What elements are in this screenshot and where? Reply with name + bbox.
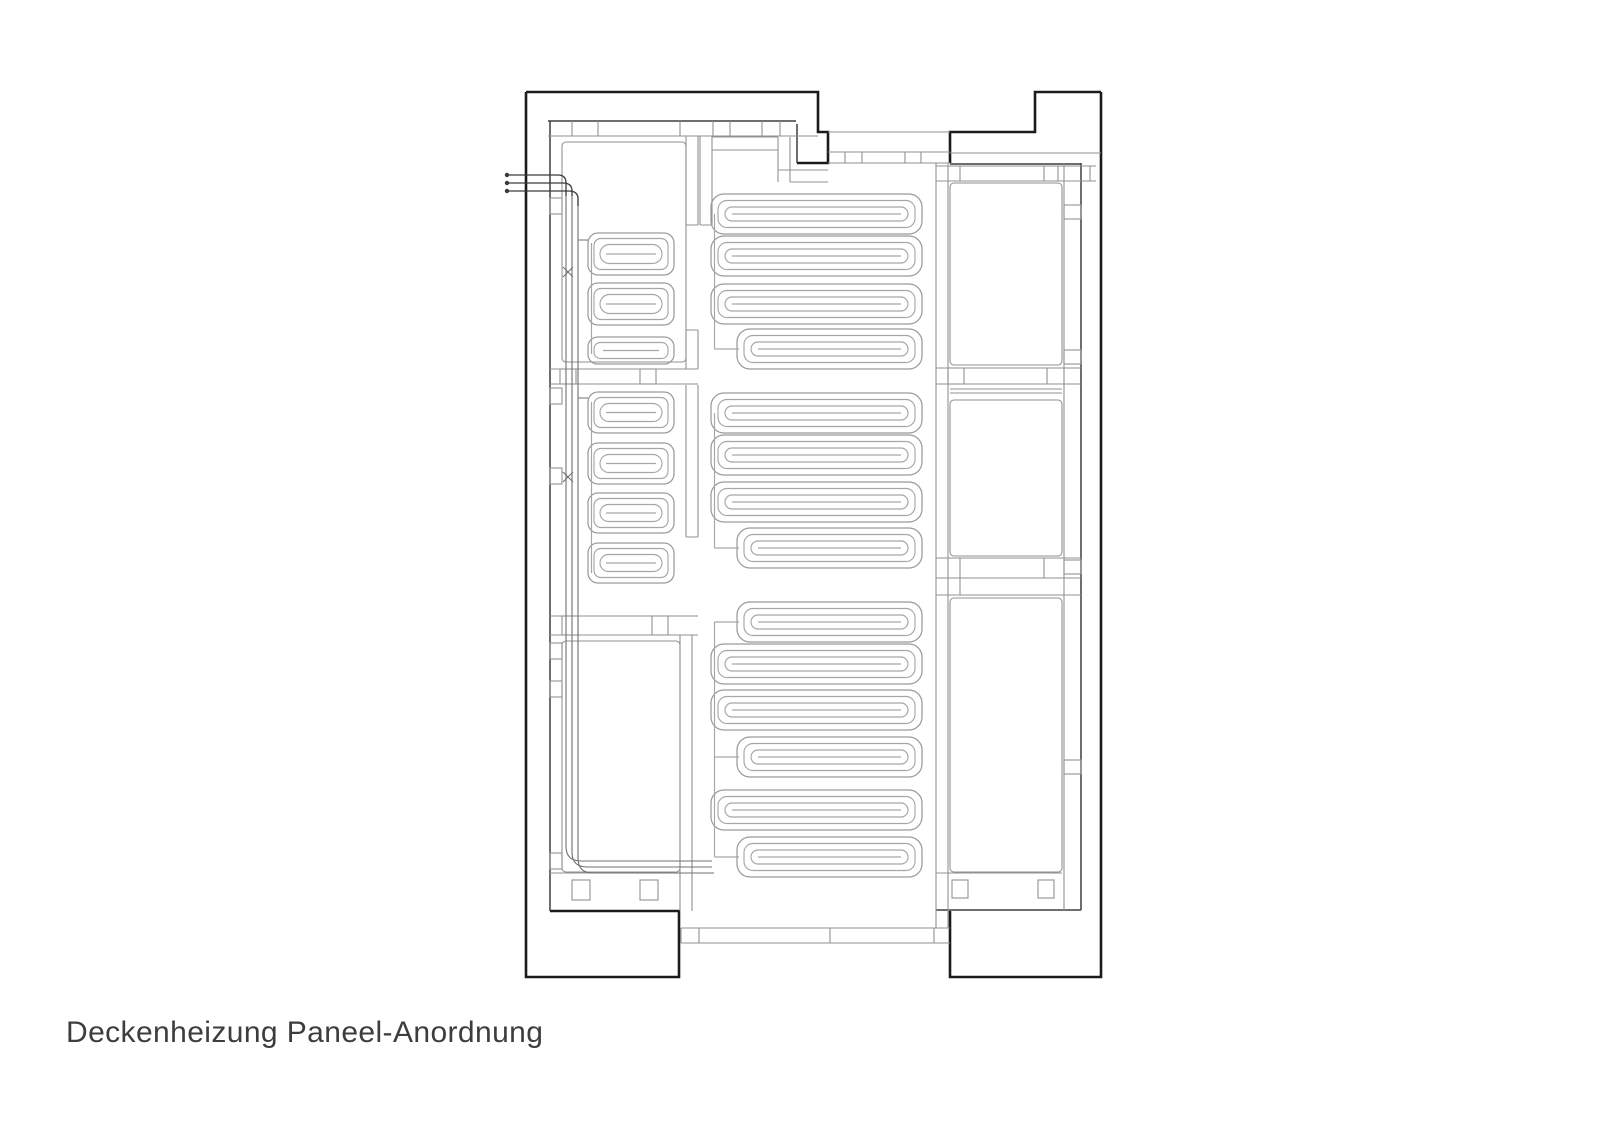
heating-panel	[715, 737, 923, 777]
riser-pipes	[563, 196, 714, 873]
heating-panel	[588, 443, 674, 484]
heating-panel	[715, 528, 923, 568]
heating-panel	[711, 482, 922, 522]
heating-panels-large	[711, 194, 922, 877]
heating-panel	[711, 644, 922, 684]
heating-panel	[711, 790, 922, 830]
heating-panel	[588, 543, 674, 583]
large-panel-group	[711, 194, 922, 369]
heating-panel	[711, 284, 922, 324]
heating-panel	[711, 194, 922, 234]
heating-panel	[711, 236, 922, 276]
large-panel-group	[711, 393, 922, 568]
heating-panel	[588, 392, 674, 433]
heating-panels-small	[588, 233, 674, 583]
heating-panel	[588, 493, 674, 533]
heating-panel	[588, 337, 674, 364]
heating-panel	[588, 283, 674, 325]
heating-panel	[588, 233, 674, 275]
pipe-entry	[505, 173, 578, 206]
small-panel-group	[588, 392, 674, 583]
small-panel-group	[588, 233, 674, 364]
drawing-title: Deckenheizung Paneel-Anordnung	[66, 1016, 543, 1050]
heating-panel	[715, 329, 923, 369]
heating-panel	[715, 837, 923, 877]
floor-plan	[0, 0, 1600, 1132]
large-panel-group	[711, 602, 922, 877]
drawing-sheet: Deckenheizung Paneel-Anordnung	[0, 0, 1600, 1132]
heating-panel	[711, 435, 922, 475]
heating-panel	[711, 393, 922, 433]
heating-panel	[715, 602, 923, 642]
heating-panel	[711, 690, 922, 730]
supply-pipes	[505, 173, 714, 873]
